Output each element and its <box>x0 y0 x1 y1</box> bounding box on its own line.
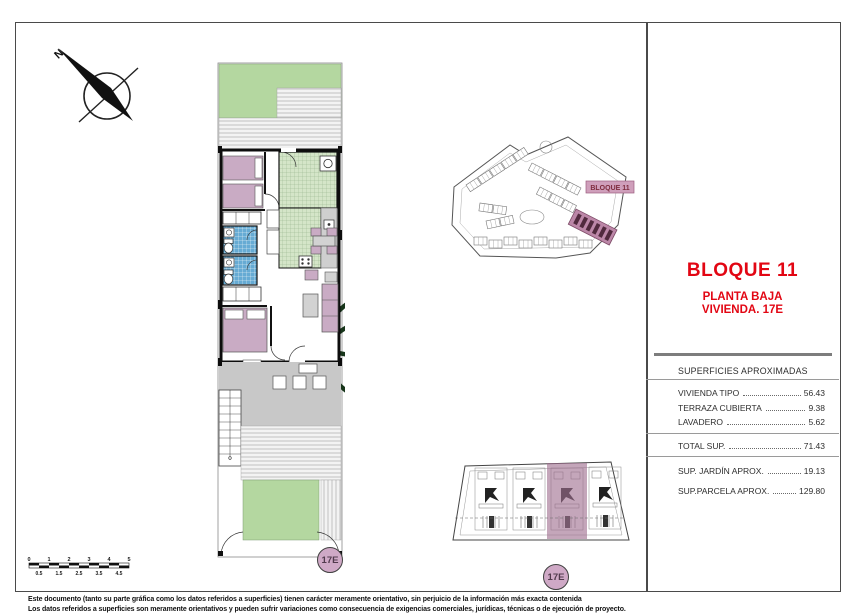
row-label: VIVIENDA TIPO <box>678 388 739 398</box>
dotted-leader <box>729 448 800 449</box>
block-label-text: BLOQUE 11 <box>590 185 629 192</box>
scale-tick: 0 <box>27 557 30 563</box>
scale-tick: 1.5 <box>56 571 63 577</box>
dotted-leader <box>743 395 800 396</box>
closet <box>223 287 261 301</box>
row-label: LAVADERO <box>678 417 723 427</box>
laundry-room <box>279 148 337 208</box>
fridge-icon <box>267 210 279 228</box>
row-value: 19.13 <box>804 466 825 476</box>
scale-tick: 1 <box>47 557 50 563</box>
stove-icon <box>299 256 312 267</box>
table-row: LAVADERO 5.62 <box>678 417 825 427</box>
side-deck <box>321 480 341 540</box>
row-label: TOTAL SUP. <box>678 441 725 451</box>
closet <box>223 212 261 224</box>
chair <box>311 228 321 236</box>
scale-tick: 2.5 <box>76 571 83 577</box>
bathroom-2 <box>223 256 257 285</box>
row-label: SUP. JARDÍN APROX. <box>678 466 764 476</box>
areas-table: SUPERFICIES APROXIMADAS VIVIENDA TIPO 56… <box>646 366 839 507</box>
dotted-leader <box>766 410 806 411</box>
outdoor-chair <box>293 376 306 389</box>
row-value: 129.80 <box>799 486 825 496</box>
row-value: 71.43 <box>804 441 825 451</box>
block-label: BLOQUE 11 <box>586 181 634 193</box>
unit-badge-text: 17E <box>322 555 339 566</box>
sofa <box>322 284 338 332</box>
scale-tick: 3.5 <box>96 571 103 577</box>
floor-plan <box>215 60 345 560</box>
toilet-icon <box>224 274 233 284</box>
scale-tick: 2 <box>67 557 70 563</box>
rear-deck <box>241 426 341 480</box>
scale-bar: 0 1 2 3 4 5 0.5 1.5 2.5 3.5 4.5 <box>24 554 139 582</box>
outdoor-chair <box>313 376 326 389</box>
sink-icon <box>224 258 234 267</box>
dining-table <box>313 236 335 246</box>
row-value: 9.38 <box>808 403 825 413</box>
table-row: VIVIENDA TIPO 56.43 <box>678 388 825 398</box>
panel-separator <box>654 353 832 356</box>
scale-tick: 5 <box>127 557 130 563</box>
stairs <box>219 390 241 466</box>
block-outline <box>453 462 629 540</box>
table-row: SUP. JARDÍN APROX. 19.13 <box>678 466 825 476</box>
row-value: 5.62 <box>808 417 825 427</box>
table-row: SUP.PARCELA APROX. 129.80 <box>678 486 825 496</box>
scale-tick: 4 <box>107 557 111 563</box>
garden-door <box>281 148 296 152</box>
highlighted-unit <box>547 463 587 539</box>
side-table <box>325 272 337 282</box>
row-value: 56.43 <box>804 388 825 398</box>
dotted-leader <box>727 424 805 425</box>
site-plan: BLOQUE 11 <box>440 125 640 295</box>
cabinet <box>267 230 279 254</box>
table-row: TERRAZA CUBIERTA 9.38 <box>678 403 825 413</box>
outdoor-table <box>299 364 317 373</box>
block-key-plan <box>443 450 638 555</box>
dotted-leader <box>773 493 796 494</box>
table-header: SUPERFICIES APROXIMADAS <box>678 366 839 379</box>
disclaimer-line-2: Los datos referidos a superficies son me… <box>28 605 828 614</box>
chair <box>327 228 337 236</box>
tv-bench <box>305 270 318 280</box>
coffee-table <box>303 294 318 317</box>
row-label: TERRAZA CUBIERTA <box>678 403 762 413</box>
scale-tick: 0.5 <box>36 571 43 577</box>
sink-icon <box>224 228 234 237</box>
row-label: SUP.PARCELA APROX. <box>678 486 769 496</box>
floor-title: PLANTA BAJA <box>646 291 839 304</box>
unit-badge-block-plan: 17E <box>543 564 569 590</box>
disclaimer-line-1: Este documento (tanto su parte gráfica c… <box>28 595 828 605</box>
north-label: N <box>52 47 66 61</box>
disclaimer: Este documento (tanto su parte gráfica c… <box>28 595 828 614</box>
chair <box>311 246 321 254</box>
scale-tick: 4.5 <box>116 571 123 577</box>
total-row: TOTAL SUP. 71.43 <box>678 441 825 451</box>
dotted-leader <box>768 473 801 474</box>
toilet-icon <box>224 243 233 253</box>
unit-badge-floor-plan: 17E <box>317 547 343 573</box>
info-panel: BLOQUE 11 PLANTA BAJA VIVIENDA. 17E SUPE… <box>646 22 839 590</box>
scale-tick: 3 <box>87 557 90 563</box>
plan-sheet: N <box>0 0 850 614</box>
unit-badge-text: 17E <box>548 572 565 583</box>
washing-machine-icon <box>320 156 336 171</box>
block-title: BLOQUE 11 <box>646 260 839 282</box>
outdoor-chair <box>273 376 286 389</box>
unit-title: VIVIENDA. 17E <box>646 304 839 317</box>
chair <box>327 246 337 254</box>
title-block: BLOQUE 11 PLANTA BAJA VIVIENDA. 17E <box>646 260 839 317</box>
bathroom-1 <box>223 226 257 254</box>
north-compass-icon: N <box>45 33 155 133</box>
